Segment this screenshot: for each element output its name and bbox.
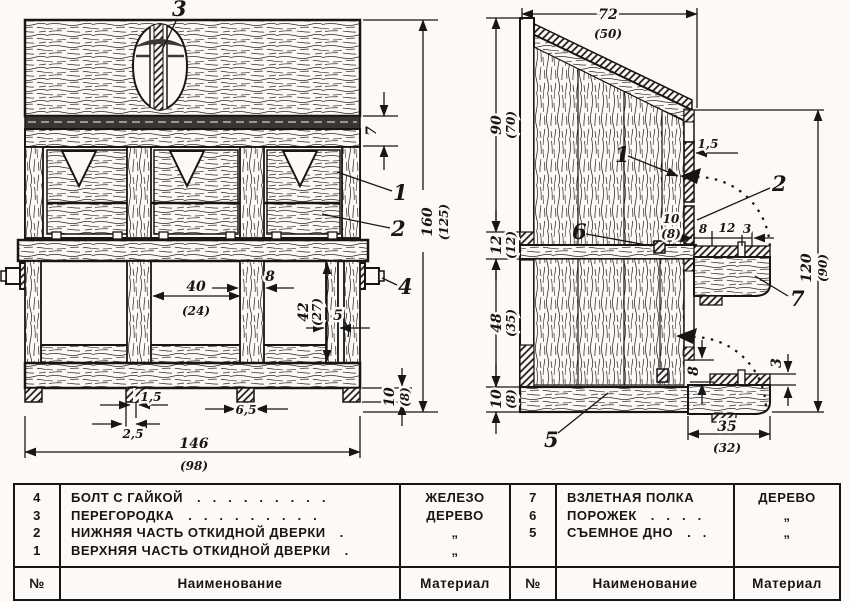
dim-lower-alt: (27): [310, 298, 324, 326]
part-label-2: 2: [390, 216, 406, 241]
leader-dots: .........: [197, 490, 338, 505]
dim-bshelf: 35: [717, 419, 736, 435]
dim-cell: 40: [186, 279, 206, 295]
mid-post: [127, 147, 151, 238]
front-wall-block: [684, 259, 694, 271]
dim-post: 8: [265, 269, 275, 285]
dim-bshelf-alt: (32): [713, 441, 741, 455]
front-wall-lower: [684, 259, 694, 360]
mid-post: [240, 147, 264, 238]
part-label-2: 2: [771, 171, 787, 196]
name-column: ВЗЛЕТНАЯ ПОЛКА ПОРОЖЕК.... СЪЕМНОЕ ДНО..: [557, 485, 735, 566]
leader-dots: .........: [188, 508, 329, 523]
part-name-row: НИЖНЯЯ ЧАСТЬ ОТКИДНОЙ ДВЕРКИ.: [61, 524, 399, 542]
dim-width-alt: (98): [180, 459, 208, 473]
leader-dots: .: [340, 525, 356, 540]
removable-bottom: [520, 387, 694, 412]
side-view: [520, 18, 770, 422]
dim-base: 10: [382, 387, 398, 407]
back-wall-section: [520, 345, 534, 387]
part-num: 2: [15, 524, 59, 542]
dim-s8: 8: [699, 222, 708, 236]
part-material: ДЕРЕВО: [401, 507, 509, 525]
header-name: Наименование: [557, 566, 735, 599]
header-material: Материал: [401, 566, 509, 599]
part-material: „: [401, 542, 509, 560]
mid-rail: [41, 345, 330, 363]
part-label-1: 1: [393, 180, 408, 205]
part-num: 4: [15, 489, 59, 507]
header-num: №: [15, 566, 61, 599]
front-trim-board: [25, 129, 360, 147]
door-swing-arc: [697, 177, 770, 250]
part-name-row: ВЕРХНЯЯ ЧАСТЬ ОТКИДНОЙ ДВЕРКИ.: [61, 542, 399, 560]
part-label-3: 3: [172, 0, 187, 21]
part-name: НИЖНЯЯ ЧАСТЬ ОТКИДНОЙ ДВЕРКИ: [71, 525, 326, 540]
part-name: ПОРОЖЕК: [567, 508, 637, 523]
threshold-block: [654, 241, 665, 253]
part-num: 7: [511, 489, 555, 507]
dim-gap: 5: [333, 308, 343, 324]
num-column: 4 3 2 1: [15, 485, 61, 566]
part-name: СЪЕМНОЕ ДНО: [567, 525, 673, 540]
dim-s3: 3: [743, 222, 751, 236]
leader-dots: ..: [687, 525, 718, 540]
header-num: №: [511, 566, 557, 599]
part-name-row: ВЗЛЕТНАЯ ПОЛКА: [557, 489, 733, 507]
part-material: „: [401, 524, 509, 542]
part-label-5: 5: [544, 427, 559, 452]
dim-cell-alt: (24): [182, 304, 210, 318]
dim-slot: 1,5: [141, 390, 162, 404]
part-num: 5: [511, 524, 555, 542]
dim-top: 72: [598, 7, 618, 23]
num-column: 7 6 5: [511, 485, 557, 566]
part-label-6: 6: [572, 219, 587, 244]
dim-s12: 12: [719, 221, 736, 235]
part-name-row: БОЛТ С ГАЙКОЙ.........: [61, 489, 399, 507]
mid-shelf: [520, 245, 696, 259]
part-material: „: [735, 507, 839, 525]
dim-door-alt: (8): [661, 227, 681, 241]
lower-post: [240, 261, 264, 363]
leader-dots: ....: [651, 508, 713, 523]
dim-top-alt: (50): [594, 27, 622, 41]
edge-post: [342, 147, 360, 238]
technical-drawing: 7 160 (125) 40 (24) 8 42 (27) 5 1,5 2,5 …: [0, 0, 850, 482]
part-name: БОЛТ С ГАЙКОЙ: [71, 490, 183, 505]
dim-door: 10: [663, 212, 680, 226]
dim-right: 120: [799, 253, 815, 282]
name-column: БОЛТ С ГАЙКОЙ......... ПЕРЕГОРОДКА......…: [61, 485, 401, 566]
dim-height: 160: [420, 207, 436, 236]
part-material: ДЕРЕВО: [735, 489, 839, 507]
parts-table-left: 4 3 2 1 БОЛТ С ГАЙКОЙ......... ПЕРЕГОРОД…: [13, 483, 511, 601]
bottom-stop-block: [657, 369, 668, 382]
part-material: „: [735, 524, 839, 542]
lower-post: [127, 261, 151, 363]
dim-width: 146: [179, 436, 208, 452]
part-num: 1: [15, 542, 59, 560]
roof-edge-band: [25, 116, 360, 129]
parts-table-right: 7 6 5 ВЗЛЕТНАЯ ПОЛКА ПОРОЖЕК.... СЪЕМНОЕ…: [509, 483, 841, 601]
front-top-board: [25, 20, 360, 116]
dim-right-alt: (90): [816, 254, 830, 282]
front-wall-block: [684, 347, 694, 360]
dim-bgap: 8: [686, 366, 702, 376]
dim-base: 10: [489, 389, 505, 409]
dim-height-alt: (125): [437, 204, 451, 240]
dim-upper: 90: [489, 115, 505, 135]
part-name-row: ПОРОЖЕК....: [557, 507, 733, 525]
dim-lower-alt: (35): [504, 309, 518, 337]
header-name: Наименование: [61, 566, 401, 599]
dim-band: 7: [364, 126, 380, 136]
dim-shelf-alt: (12): [504, 231, 518, 259]
part-material: ЖЕЛЕЗО: [401, 489, 509, 507]
dim-wall: 1,5: [698, 137, 719, 151]
dim-slot-off: 2,5: [122, 427, 144, 441]
part-name-row: СЪЕМНОЕ ДНО..: [557, 524, 733, 542]
part-name: ПЕРЕГОРОДКА: [71, 508, 174, 523]
part-num: 3: [15, 507, 59, 525]
edge-post: [25, 147, 43, 238]
front-wall-block: [684, 110, 694, 122]
part-name: ВЗЛЕТНАЯ ПОЛКА: [567, 490, 694, 505]
drawing-sheet: 7 160 (125) 40 (24) 8 42 (27) 5 1,5 2,5 …: [0, 0, 850, 602]
material-column: ДЕРЕВО „ „: [735, 485, 839, 566]
leader-dots: .: [345, 543, 361, 558]
shelf-board: [18, 240, 368, 261]
part-name-row: ПЕРЕГОРОДКА.........: [61, 507, 399, 525]
dim-shelf: 12: [489, 235, 505, 255]
dim-blip: 3: [769, 358, 785, 368]
part-label-4: 4: [398, 274, 413, 299]
bottom-shelf: [688, 370, 770, 422]
part-name: ВЕРХНЯЯ ЧАСТЬ ОТКИДНОЙ ДВЕРКИ: [71, 543, 331, 558]
lower-side-panel: [534, 259, 684, 385]
dim-upper-alt: (70): [504, 111, 518, 139]
dim-base-alt: (8): [398, 387, 412, 407]
material-column: ЖЕЛЕЗО ДЕРЕВО „ „: [401, 485, 509, 566]
part-label-7: 7: [790, 286, 805, 311]
foot-slot: [133, 388, 136, 402]
header-material: Материал: [735, 566, 839, 599]
bottom-rail: [25, 363, 360, 388]
dim-lower: 48: [489, 313, 505, 333]
dim-base-alt: (8): [504, 389, 518, 409]
part-num: 6: [511, 507, 555, 525]
part-label-1: 1: [615, 142, 630, 167]
dim-foot: 6,5: [236, 403, 257, 417]
feet: [25, 388, 360, 402]
landing-shelf: [694, 242, 770, 305]
